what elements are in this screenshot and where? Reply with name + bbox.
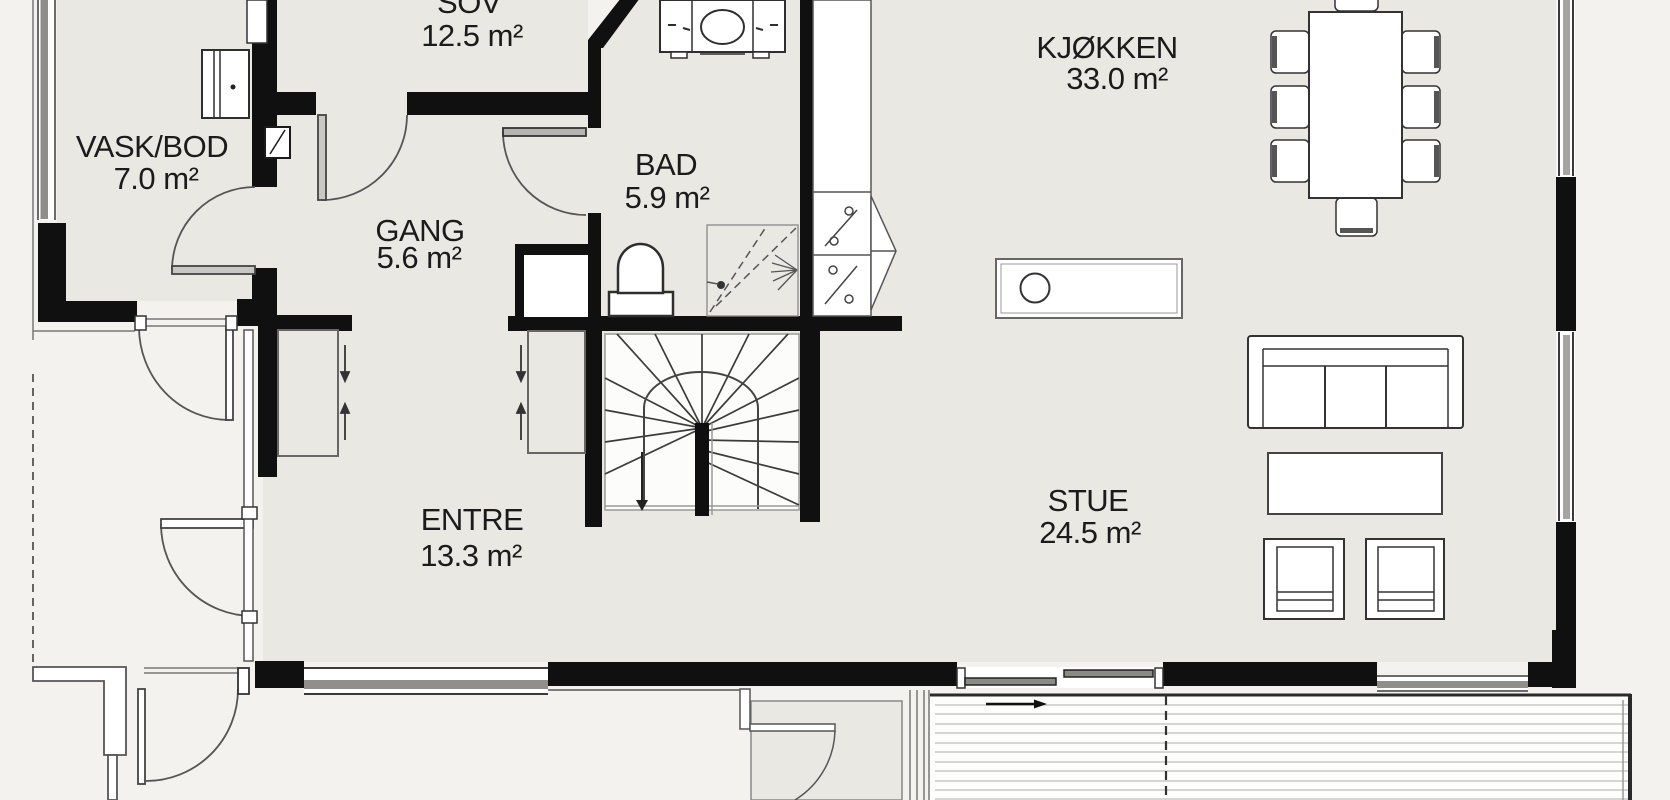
svg-text:BAD: BAD [635, 147, 697, 182]
svg-text:ENTRE: ENTRE [421, 502, 524, 537]
svg-text:7.0 m²: 7.0 m² [114, 161, 199, 196]
svg-text:12.5 m²: 12.5 m² [421, 18, 523, 53]
svg-text:VASK/BOD: VASK/BOD [76, 129, 228, 164]
svg-text:5.6 m²: 5.6 m² [377, 240, 462, 275]
svg-text:STUE: STUE [1048, 483, 1129, 518]
svg-text:13.3 m²: 13.3 m² [420, 538, 522, 573]
svg-text:33.0 m²: 33.0 m² [1066, 61, 1168, 96]
svg-text:SOV: SOV [437, 0, 502, 20]
svg-text:KJØKKEN: KJØKKEN [1036, 30, 1177, 65]
svg-text:24.5 m²: 24.5 m² [1039, 515, 1141, 550]
svg-text:5.9 m²: 5.9 m² [625, 180, 710, 215]
